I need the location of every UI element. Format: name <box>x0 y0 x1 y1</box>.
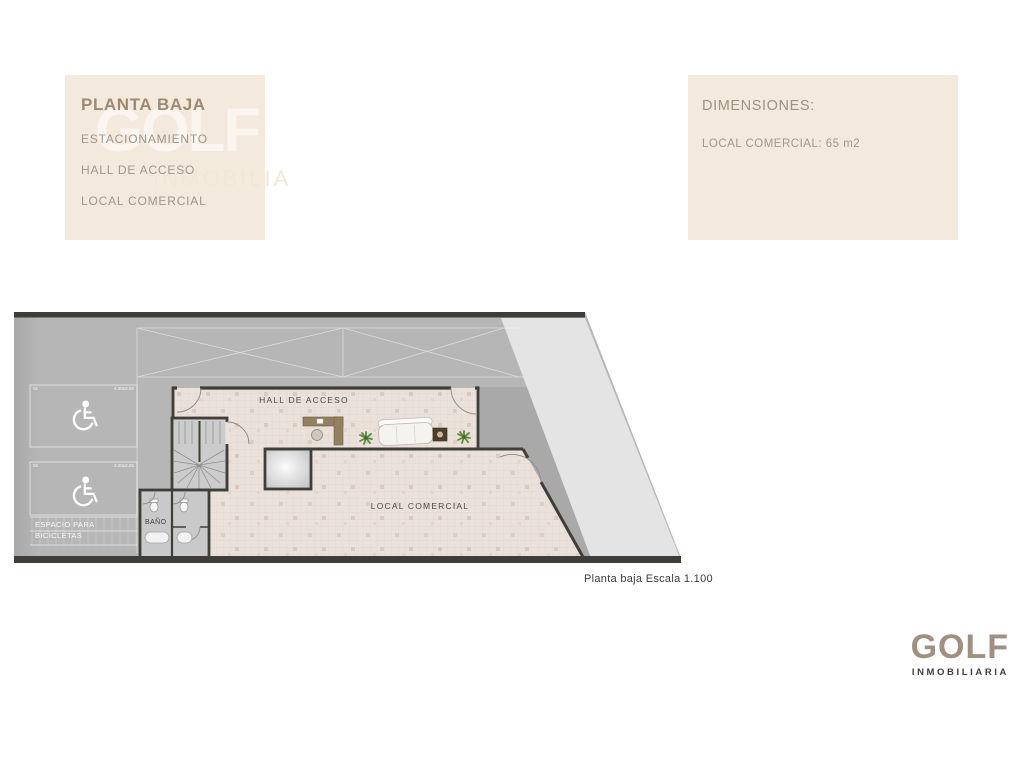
legend-item-hall: HALL DE ACCESO <box>81 163 265 177</box>
office-chair-icon <box>312 430 323 441</box>
staircase <box>172 418 229 490</box>
bathtub-icon <box>145 532 169 543</box>
stall2-dimension: 4.30x3.25 <box>114 463 135 468</box>
bathroom-label: BAÑO <box>145 517 167 526</box>
bike-area-label-2: BICICLETAS <box>35 531 82 540</box>
bathroom: BAÑO <box>140 490 209 558</box>
stall1-number: 01 <box>33 386 39 391</box>
elevator <box>265 449 311 489</box>
legend-title: PLANTA BAJA <box>81 95 265 115</box>
dimensions-title: DIMENSIONES: <box>702 98 958 114</box>
side-table-icon <box>433 428 447 441</box>
hall-label: HALL DE ACCESO <box>259 395 349 405</box>
legend-item-estacionamiento: ESTACIONAMIENTO <box>81 132 265 146</box>
bike-area-label-1: ESPACIO PARA <box>35 520 95 529</box>
page: GOLF INMOBILIA PLANTA BAJA ESTACIONAMIEN… <box>0 0 1024 768</box>
stair-door-opening <box>225 422 228 444</box>
top-boundary-wall <box>14 312 585 318</box>
floor-plan: 01 4.30x3.25 02 4.30x3.25 ESPACIO PARA B… <box>14 310 682 565</box>
dimensions-detail: LOCAL COMERCIAL: 65 m2 <box>702 138 958 150</box>
plan-caption: Planta baja Escala 1.100 <box>584 573 713 585</box>
brand-logo-name: GOLF <box>911 630 1009 664</box>
stall2-number: 02 <box>33 463 39 468</box>
legend-box: PLANTA BAJA ESTACIONAMIENTO HALL DE ACCE… <box>65 75 265 240</box>
shower-tray-icon <box>177 532 192 543</box>
stall1-dimension: 4.30x3.25 <box>114 386 135 391</box>
local-label: LOCAL COMERCIAL <box>371 501 469 511</box>
legend-item-local: LOCAL COMERCIAL <box>81 194 265 208</box>
brand-logo: GOLF INMOBILIARIA <box>911 630 1009 678</box>
brand-logo-subtitle: INMOBILIARIA <box>911 667 1009 678</box>
bottom-boundary-wall <box>14 556 681 563</box>
dimensions-box: DIMENSIONES: LOCAL COMERCIAL: 65 m2 <box>688 75 958 240</box>
sofa-icon <box>378 417 433 446</box>
